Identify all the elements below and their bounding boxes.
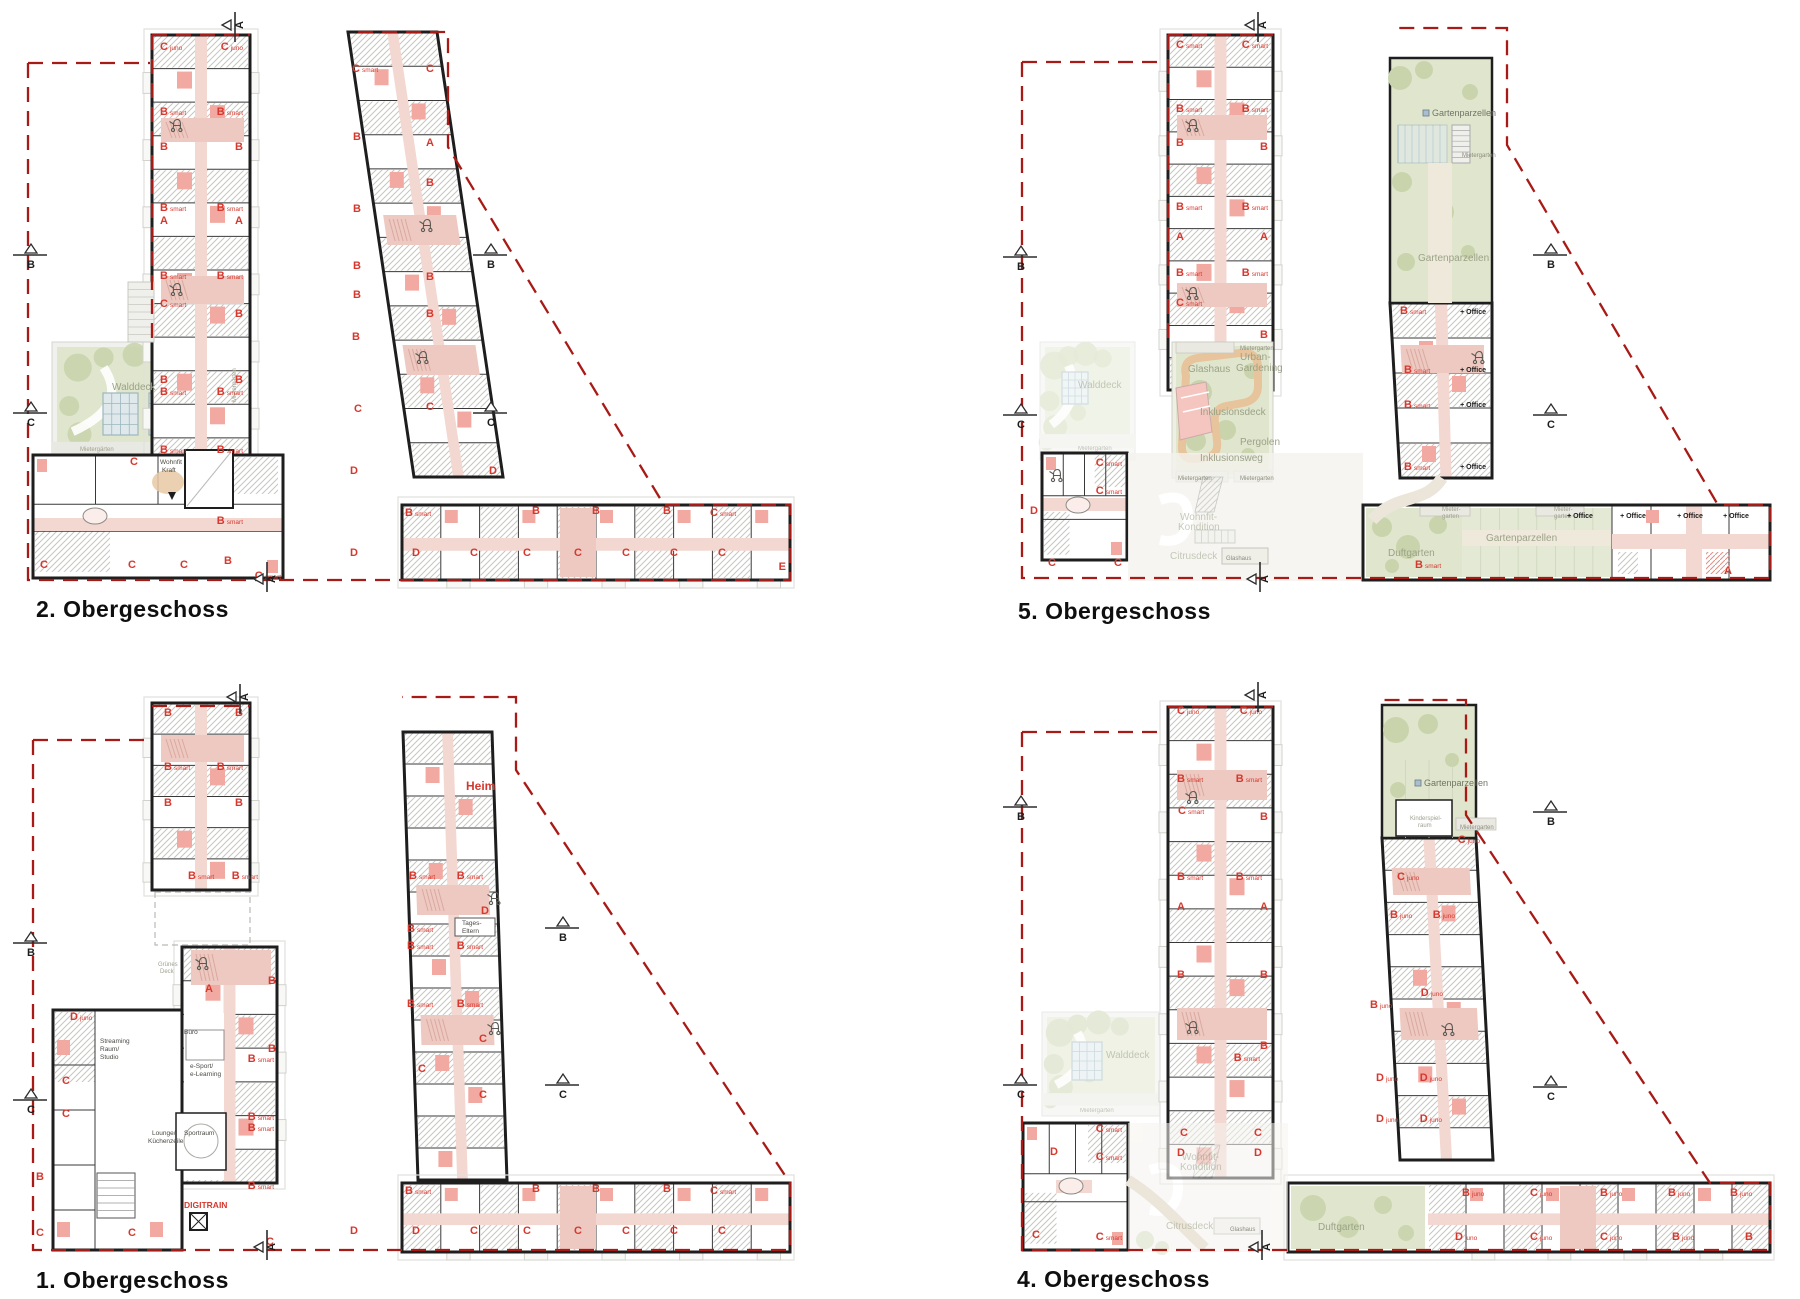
- apartment-type-label: B: [1260, 329, 1268, 341]
- area-label: Mietergärten: [80, 447, 114, 453]
- area-label: Raum/: [100, 1046, 119, 1053]
- section-marker-b: B: [1533, 801, 1567, 828]
- apartment-type-label: B: [353, 131, 361, 143]
- apartment-type-label: D: [1050, 1146, 1058, 1158]
- apartment-type-label: C: [418, 1063, 426, 1075]
- area-label: Gartenparzellen: [1424, 778, 1488, 788]
- apartment-type-label: C: [1180, 1127, 1188, 1139]
- apartment-type-label: A: [1176, 231, 1184, 243]
- apartment-type-label: C: [622, 1225, 630, 1237]
- area-label: Glashaus: [1226, 556, 1251, 562]
- section-marker-b: B: [1533, 244, 1567, 271]
- svg-text:C: C: [487, 417, 495, 429]
- apartment-type-label: C: [574, 547, 582, 559]
- apartment-type-label: B: [164, 797, 172, 809]
- area-label: Gartenparzellen: [1432, 108, 1496, 118]
- svg-text:B: B: [1547, 259, 1555, 271]
- area-label: + Office: [1460, 367, 1486, 374]
- area-label: Kondition: [1180, 1162, 1222, 1173]
- apartment-type-label: B: [352, 331, 360, 343]
- area-label: Deck: [160, 969, 175, 975]
- area-label: Wohnfit: [160, 459, 182, 466]
- area-label: + Office: [1460, 309, 1486, 316]
- area-label: Mietergärten: [1078, 446, 1112, 452]
- apartment-type-label: C: [426, 401, 434, 413]
- svg-text:A: A: [1257, 691, 1269, 699]
- area-label: Duftgarten: [1318, 1222, 1365, 1233]
- section-marker-c: C: [13, 1089, 47, 1116]
- apartment-type-label: C: [180, 559, 188, 571]
- area-label: Duftgarten: [1388, 548, 1435, 559]
- apartment-type-label: C: [1048, 557, 1056, 569]
- area-label: + Office: [1723, 513, 1749, 520]
- apartment-type-label: B: [353, 260, 361, 272]
- area-label: Urban-: [1240, 352, 1271, 363]
- plan-2-obergeschoss: CjunoCjunoBsmartBsmartBBBsmartBsmartAABs…: [13, 12, 794, 622]
- apartment-type-label: B: [36, 1171, 44, 1183]
- svg-text:A: A: [1261, 1243, 1273, 1251]
- apartment-type-label: C: [718, 547, 726, 559]
- apartment-type-label: B: [532, 1183, 540, 1195]
- area-label: Glashaus: [1188, 364, 1230, 375]
- svg-text:A: A: [266, 575, 278, 583]
- apartment-type-label: C: [523, 547, 531, 559]
- walddeck-terrace: [1042, 1010, 1160, 1116]
- area-label: Walddeck: [112, 382, 157, 393]
- area-label: Tages-: [462, 920, 482, 927]
- apartment-type-label: A: [205, 983, 213, 995]
- floorplan-drawing: CjunoCjunoBsmartBsmartBBBsmartBsmartAABs…: [0, 0, 1800, 1299]
- area-label: + Office: [1620, 513, 1646, 520]
- apartment-type-label: B: [426, 177, 434, 189]
- svg-text:C: C: [1547, 1091, 1555, 1103]
- area-label: Mietergärten: [1080, 1108, 1114, 1114]
- svg-text:A: A: [1259, 575, 1271, 583]
- svg-text:B: B: [27, 947, 35, 959]
- apartment-type-label: D: [350, 547, 358, 559]
- area-label: Heim: [466, 779, 495, 793]
- area-label: + Office: [1460, 464, 1486, 471]
- apartment-type-label: B: [160, 141, 168, 153]
- walddeck-terrace: [1039, 342, 1135, 460]
- apartment-type-label: B: [1177, 969, 1185, 981]
- area-label: Inklusionsweg: [1200, 453, 1263, 464]
- area-label: Mietergarten: [1460, 825, 1494, 831]
- sportraum: [176, 1113, 226, 1170]
- apartment-type-label: C: [130, 456, 138, 468]
- apartment-type-label: A: [235, 215, 243, 227]
- apartment-type-label: Djuno: [1376, 1113, 1399, 1125]
- apartment-type-label: A: [1177, 901, 1185, 913]
- section-marker-b: B: [13, 932, 47, 959]
- section-marker-c: C: [1003, 1074, 1037, 1101]
- apartment-type-label: D: [489, 465, 497, 477]
- area-label: Büro: [184, 1029, 198, 1036]
- plan-title-2og: 2. Obergeschoss: [36, 596, 229, 622]
- apartment-type-label: A: [160, 215, 168, 227]
- area-label: Mietergärten: [232, 368, 238, 402]
- apartment-type-label: B: [235, 141, 243, 153]
- apartment-type-label: B: [592, 1183, 600, 1195]
- apartment-type-label: B: [235, 707, 243, 719]
- apartment-type-label: B: [1176, 137, 1184, 149]
- apartment-type-label: B: [1260, 141, 1268, 153]
- svg-text:A: A: [239, 693, 251, 701]
- apartment-type-label: C: [622, 547, 630, 559]
- svg-text:C: C: [27, 1104, 35, 1116]
- apartment-type-label: B: [1260, 969, 1268, 981]
- section-marker-a: A: [254, 1230, 278, 1260]
- residential-slab-tilted: [1382, 838, 1493, 1160]
- apartment-type-label: B: [353, 203, 361, 215]
- apartment-type-label: C: [670, 1225, 678, 1237]
- area-label: Gartenparzellen: [1418, 253, 1489, 264]
- apartment-type-label: B: [268, 1043, 276, 1055]
- plan-title-5og: 5. Obergeschoss: [1018, 598, 1211, 624]
- apartment-type-label: B: [1745, 1231, 1753, 1243]
- area-label: + Office: [1460, 402, 1486, 409]
- section-marker-b: B: [1003, 796, 1037, 823]
- area-label: Lounge/: [152, 1130, 176, 1137]
- svg-text:C: C: [1017, 1089, 1025, 1101]
- area-label: Citrusdeck: [1170, 551, 1218, 562]
- apartment-type-label: C: [1032, 1229, 1040, 1241]
- area-label: Citrusdeck: [1166, 1221, 1214, 1232]
- svg-text:C: C: [27, 417, 35, 429]
- apartment-type-label: C: [479, 1089, 487, 1101]
- svg-text:A: A: [1257, 21, 1269, 29]
- area-label: Studio: [100, 1054, 119, 1061]
- apartment-type-label: B: [235, 308, 243, 320]
- apartment-type-label: C: [523, 1225, 531, 1237]
- svg-text:C: C: [1017, 419, 1025, 431]
- area-label: garten: [1442, 514, 1459, 520]
- plan-4-obergeschoss: CjunoCjunoBsmartBsmartCsmartBBsmartBsmar…: [1003, 682, 1774, 1292]
- apartment-type-label: D: [1254, 1147, 1262, 1159]
- section-marker-b: B: [13, 244, 47, 271]
- apartment-type-label: B: [268, 975, 276, 987]
- apartment-type-label: D: [1030, 505, 1038, 517]
- residential-slab-tilted: [403, 732, 507, 1180]
- area-label: Streaming: [100, 1038, 130, 1045]
- apartment-type-label: C: [426, 63, 434, 75]
- area-label: Gardening: [1236, 363, 1283, 374]
- svg-text:B: B: [487, 259, 495, 271]
- gartenparzellen-roof: [1388, 58, 1492, 303]
- area-label: Mieter-: [1442, 507, 1461, 513]
- apartment-type-label: B: [224, 555, 232, 567]
- apartment-type-label: B: [532, 505, 540, 517]
- apartment-type-label: B: [1260, 811, 1268, 823]
- apartment-type-label: D: [481, 905, 489, 917]
- svg-text:B: B: [1017, 811, 1025, 823]
- area-label: DIGITRAIN: [184, 1200, 227, 1210]
- apartment-type-label: B: [160, 374, 168, 386]
- apartment-type-label: C: [40, 559, 48, 571]
- apartment-type-label: C: [62, 1075, 70, 1087]
- area-label: + Office: [1567, 513, 1593, 520]
- section-marker-b: B: [545, 917, 579, 944]
- plan-title-4og: 4. Obergeschoss: [1017, 1266, 1210, 1292]
- area-label: Pergolen: [1240, 437, 1280, 448]
- plan-5-obergeschoss: CsmartCsmartBsmartBsmartBBBsmartBsmartAA…: [1003, 12, 1770, 624]
- area-label: Sportraum: [184, 1130, 214, 1137]
- apartment-type-label: B: [1260, 1040, 1268, 1052]
- apartment-type-label: E: [779, 561, 786, 573]
- section-marker-b: B: [473, 244, 507, 271]
- apartment-type-label: D: [412, 547, 420, 559]
- apartment-type-label: Bjuno: [1370, 999, 1393, 1011]
- apartment-type-label: B: [426, 308, 434, 320]
- svg-text:B: B: [1017, 261, 1025, 273]
- apartment-type-label: B: [426, 271, 434, 283]
- apartment-type-label: B: [164, 707, 172, 719]
- area-label: Mietergarten: [1462, 153, 1496, 159]
- area-label: Kraft: [162, 467, 176, 474]
- apartment-type-label: C: [62, 1108, 70, 1120]
- area-label: Kinderspiel-: [1410, 816, 1442, 822]
- apartment-type-label: D: [412, 1225, 420, 1237]
- citrus-deck: [1128, 1123, 1288, 1255]
- svg-text:B: B: [559, 932, 567, 944]
- svg-text:B: B: [27, 259, 35, 271]
- svg-text:C: C: [1547, 419, 1555, 431]
- apartment-type-label: B: [663, 505, 671, 517]
- apartment-type-label: B: [353, 289, 361, 301]
- stair-block: [1042, 453, 1127, 560]
- apartment-type-label: A: [1724, 565, 1732, 577]
- area-label: Walddeck: [1106, 1050, 1151, 1061]
- plan-1-obergeschoss: BBBsmartBsmartBBBsmartBsmartABBBsmartBsm…: [13, 684, 794, 1293]
- area-label: Glashaus: [1230, 1227, 1255, 1233]
- apartment-type-label: A: [426, 137, 434, 149]
- section-marker-c: C: [1533, 1076, 1567, 1103]
- apartment-type-label: C: [574, 1225, 582, 1237]
- area-label: Eltern: [462, 928, 479, 935]
- svg-text:C: C: [559, 1089, 567, 1101]
- svg-text:B: B: [1547, 816, 1555, 828]
- apartment-type-label: C: [1254, 1127, 1262, 1139]
- svg-text:A: A: [234, 21, 246, 29]
- apartment-type-label: D: [350, 465, 358, 477]
- area-label: Kondition: [1178, 522, 1220, 533]
- apartment-type-label: A: [1260, 231, 1268, 243]
- floorplan-sheet: CjunoCjunoBsmartBsmartBBBsmartBsmartAABs…: [0, 0, 1800, 1299]
- apartment-type-label: C: [128, 1227, 136, 1239]
- apartment-type-label: B: [592, 505, 600, 517]
- apartment-type-label: C: [36, 1227, 44, 1239]
- apartment-type-label: C: [718, 1225, 726, 1237]
- area-label: Mietergarten: [1178, 476, 1212, 482]
- apartment-type-label: C: [128, 559, 136, 571]
- apartment-type-label: C: [470, 1225, 478, 1237]
- area-label: Mietergarten: [1240, 476, 1274, 482]
- apartment-type-label: C: [670, 547, 678, 559]
- apartment-type-label: C: [1114, 557, 1122, 569]
- building-gap: [155, 892, 250, 945]
- area-label: Grünes: [158, 962, 178, 968]
- apartment-type-label: B: [235, 797, 243, 809]
- area-label: Küchenzeile: [148, 1138, 184, 1145]
- section-marker-b: B: [1003, 246, 1037, 273]
- apartment-type-label: D: [350, 1225, 358, 1237]
- area-label: Gartenparzellen: [1486, 533, 1557, 544]
- area-label: Inklusionsdeck: [1200, 407, 1267, 418]
- section-marker-c: C: [545, 1074, 579, 1101]
- area-label: e-Sport/: [190, 1063, 213, 1070]
- apartment-type-label: C: [470, 547, 478, 559]
- section-marker-c: C: [1003, 404, 1037, 431]
- area-label: + Office: [1677, 513, 1703, 520]
- apartment-type-label: A: [1260, 901, 1268, 913]
- area-label: Mietergarten: [1240, 346, 1274, 352]
- apartment-type-label: B: [663, 1183, 671, 1195]
- section-marker-c: C: [13, 402, 47, 429]
- section-marker-c: C: [1533, 404, 1567, 431]
- area-label: Walddeck: [1078, 380, 1123, 391]
- svg-text:A: A: [266, 1243, 278, 1251]
- apartment-type-label: C: [479, 1033, 487, 1045]
- south-wing: [1284, 1175, 1774, 1260]
- area-label: raum: [1418, 823, 1432, 829]
- apartment-type-label: C: [354, 403, 362, 415]
- plan-title-1og: 1. Obergeschoss: [36, 1267, 229, 1293]
- residential-slab-tilted: [1390, 303, 1492, 478]
- area-label: e-Learning: [190, 1071, 221, 1078]
